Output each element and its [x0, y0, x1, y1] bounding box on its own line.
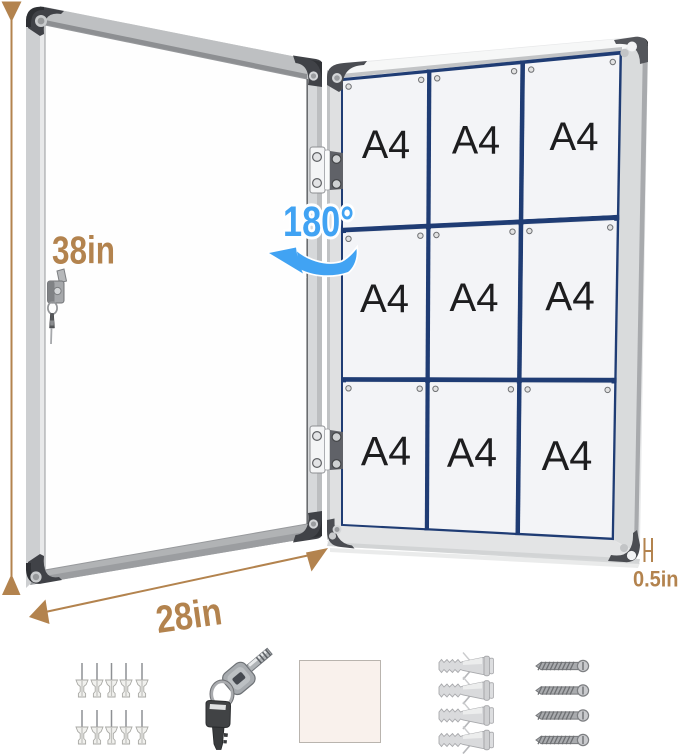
svg-text:A4: A4	[542, 432, 593, 479]
svg-text:A4: A4	[360, 277, 409, 321]
svg-text:0.5in: 0.5in	[633, 567, 679, 592]
svg-text:A4: A4	[447, 430, 497, 476]
svg-text:A4: A4	[361, 428, 411, 474]
svg-text:A4: A4	[550, 115, 599, 159]
svg-text:A4: A4	[362, 123, 410, 167]
svg-text:A4: A4	[545, 273, 595, 319]
svg-text:38in: 38in	[52, 230, 115, 273]
svg-text:28in: 28in	[153, 590, 224, 642]
svg-text:A4: A4	[452, 119, 500, 163]
svg-text:A4: A4	[450, 276, 499, 320]
svg-text:180°: 180°	[283, 198, 354, 246]
